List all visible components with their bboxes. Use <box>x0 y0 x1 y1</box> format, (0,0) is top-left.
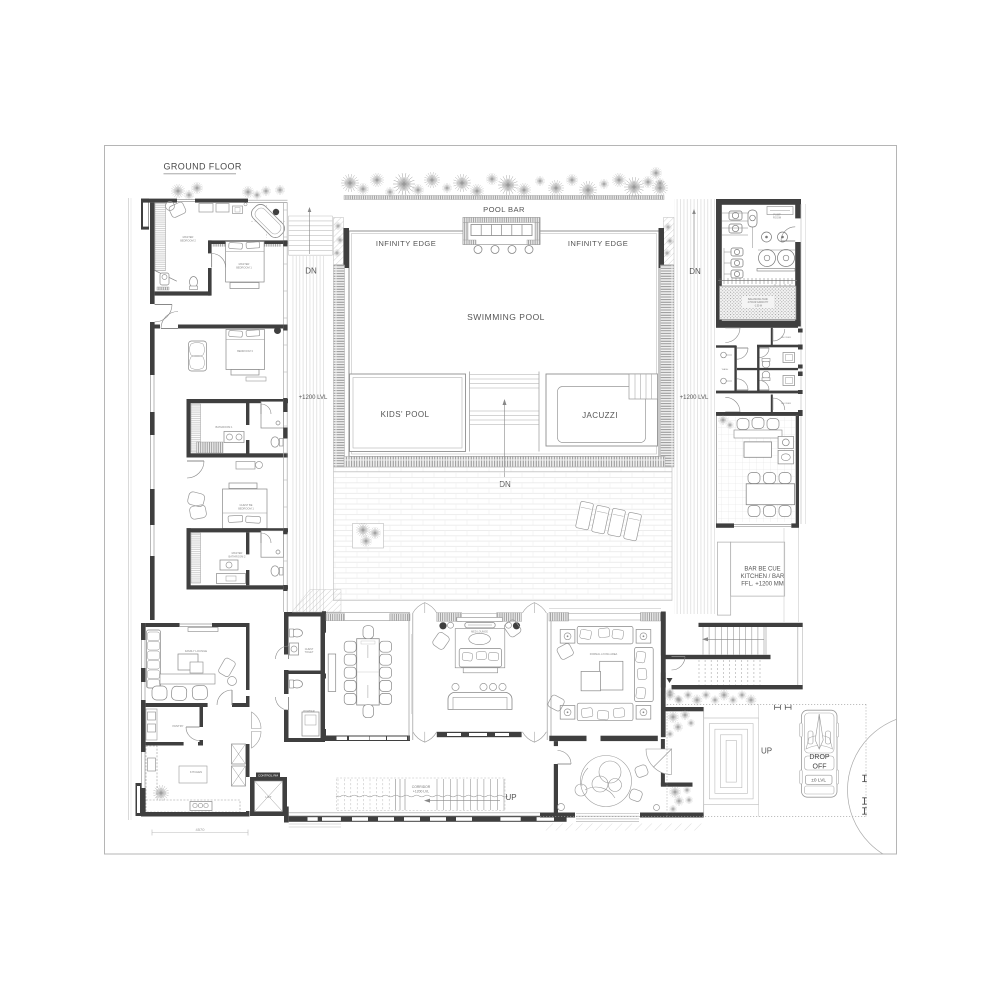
svg-text:BEDROOM 3: BEDROOM 3 <box>237 349 253 353</box>
svg-text:INFINITY EDGE: INFINITY EDGE <box>376 239 436 248</box>
svg-text:BAR BE CUE: BAR BE CUE <box>744 567 780 573</box>
svg-text:BALANCING TANK: BALANCING TANK <box>748 298 768 301</box>
svg-text:UP: UP <box>505 793 516 802</box>
svg-text:GROUND FLOOR: GROUND FLOOR <box>164 162 242 172</box>
svg-text:KIDS' POOL: KIDS' POOL <box>381 410 430 419</box>
svg-text:PANTRY: PANTRY <box>172 724 183 728</box>
svg-text:BEDROOM 1: BEDROOM 1 <box>236 266 252 270</box>
svg-text:+1200 LVL: +1200 LVL <box>680 395 709 401</box>
svg-text:4570: 4570 <box>196 827 206 832</box>
svg-text:DN: DN <box>305 267 317 276</box>
svg-text:MASTER: MASTER <box>183 235 194 239</box>
svg-text:4 HOUR CAPACITY: 4 HOUR CAPACITY <box>748 301 769 304</box>
svg-text:-1.50 M: -1.50 M <box>754 306 762 308</box>
svg-text:POOL BAR: POOL BAR <box>483 205 525 214</box>
svg-text:CORRIDOR: CORRIDOR <box>412 785 431 789</box>
svg-text:TOILET: TOILET <box>305 651 314 654</box>
svg-text:MASTER: MASTER <box>232 551 243 555</box>
svg-text:DN: DN <box>689 267 701 276</box>
svg-text:DROP: DROP <box>809 754 830 761</box>
svg-text:MASTER: MASTER <box>239 262 250 266</box>
svg-text:ROOM: ROOM <box>773 216 781 220</box>
svg-text:INFINITY EDGE: INFINITY EDGE <box>568 239 628 248</box>
svg-text:MED LOUNGE: MED LOUNGE <box>471 630 488 633</box>
svg-text:SHOWER: SHOWER <box>781 337 791 339</box>
svg-text:CONTROL RM: CONTROL RM <box>258 774 279 778</box>
svg-text:±0 LVL: ±0 LVL <box>811 778 826 784</box>
svg-text:GUEST BE: GUEST BE <box>239 503 252 507</box>
svg-text:BATHROOM 2: BATHROOM 2 <box>229 555 247 559</box>
svg-text:LIFT: LIFT <box>265 795 271 799</box>
svg-text:SWIMMING POOL: SWIMMING POOL <box>467 312 545 322</box>
svg-text:WASH: WASH <box>722 368 729 371</box>
svg-text:BATHROOM 1: BATHROOM 1 <box>216 425 234 429</box>
svg-text:+1200 LVL: +1200 LVL <box>413 790 429 794</box>
svg-text:POWDER: POWDER <box>303 710 314 713</box>
svg-text:SHOWER: SHOWER <box>781 403 791 405</box>
svg-text:FAMILY LOUNGE: FAMILY LOUNGE <box>185 649 207 653</box>
svg-text:KITCHEN / BAR: KITCHEN / BAR <box>741 574 785 580</box>
svg-text:JACUZZI: JACUZZI <box>582 411 618 420</box>
svg-text:FORMAL LIVING AREA: FORMAL LIVING AREA <box>590 652 618 656</box>
svg-text:UP: UP <box>761 747 772 756</box>
svg-text:FFL. +1200 MM: FFL. +1200 MM <box>741 582 784 588</box>
svg-text:BEDROOM 2: BEDROOM 2 <box>180 239 196 243</box>
svg-text:+1200 LVL: +1200 LVL <box>299 395 328 401</box>
svg-text:KITCHEN: KITCHEN <box>190 770 202 774</box>
svg-text:BEDROOM 1: BEDROOM 1 <box>238 507 254 511</box>
svg-text:OFF: OFF <box>813 764 827 771</box>
